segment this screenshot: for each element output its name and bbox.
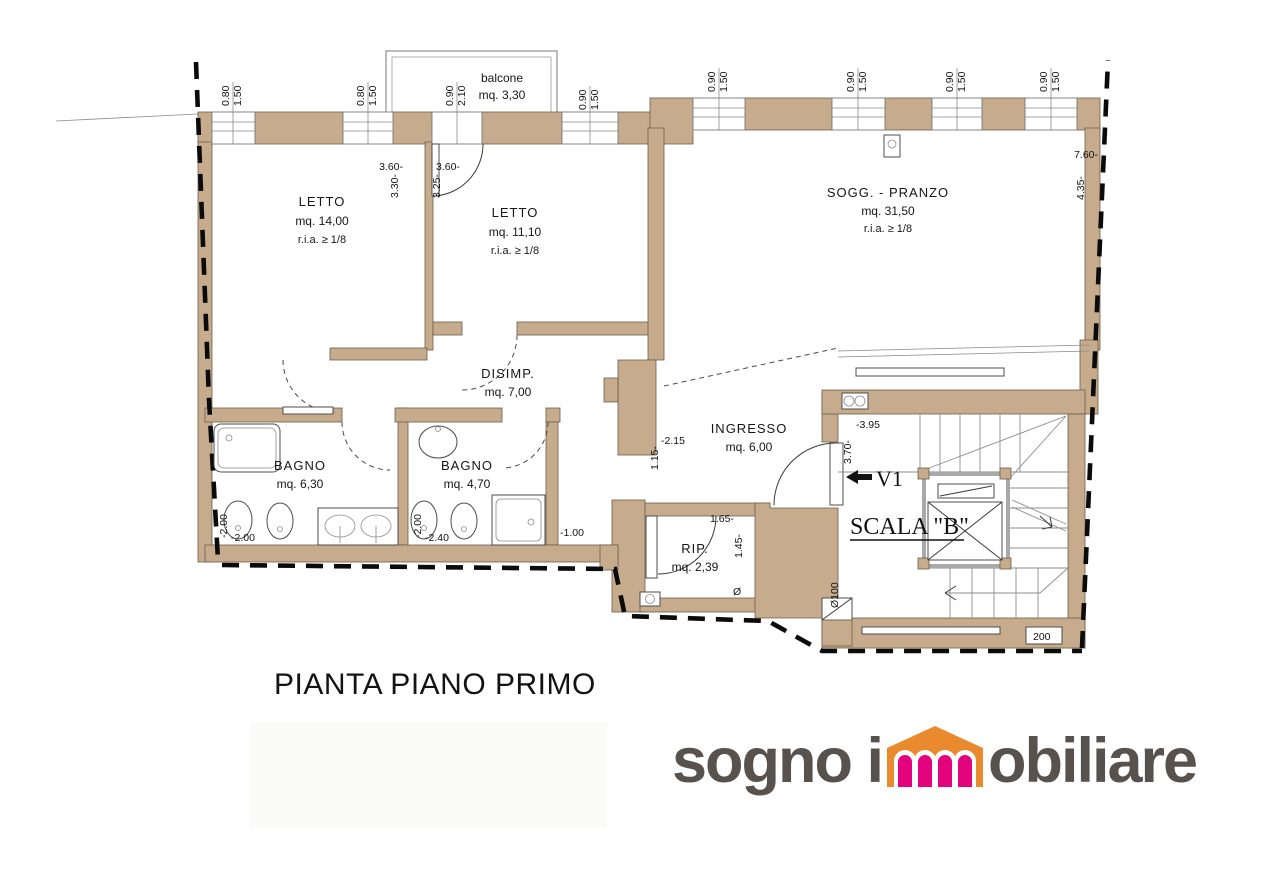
bathtub	[214, 424, 280, 472]
entrance-door	[774, 443, 843, 505]
dim-text: 7.60-	[1074, 149, 1098, 161]
room-area-disimpegno: mq. 7,00	[485, 385, 532, 399]
room-ria-soggiorno: r.i.a. ≥ 1/8	[864, 223, 912, 235]
letto2-door-swing	[462, 335, 517, 390]
window	[212, 112, 255, 144]
dim-text: 1.65-	[710, 513, 734, 525]
room-area-letto1: mq. 14,00	[295, 214, 349, 228]
room-label-ingresso: INGRESSO	[711, 421, 788, 436]
room-ria-letto1: r.i.a. ≥ 1/8	[298, 234, 346, 246]
dim-text: 0.90	[944, 71, 956, 92]
elevator-counterweight	[938, 484, 994, 498]
room-label-scala: SCALA "B"	[850, 514, 969, 540]
room-area-ingresso: mq. 6,00	[726, 440, 773, 454]
agency-logo: sogno i obiliare	[672, 724, 1196, 798]
dim-text: 0.80	[355, 85, 367, 106]
soggiorno-lower-edge	[838, 345, 1090, 376]
dimension-chain-line	[56, 114, 198, 121]
footer-placeholder-box	[250, 722, 607, 828]
room-label-bagno1: BAGNO	[274, 458, 326, 473]
logo-text-right: obiliare	[988, 724, 1196, 798]
dim-text: 0.80	[220, 85, 232, 106]
dim-text: 3.60-	[436, 161, 460, 173]
dim-text: 2.10	[456, 85, 468, 106]
label-200: 200	[1033, 631, 1051, 643]
drain-symbol: Ø	[733, 586, 741, 598]
dim-text: 3.25-	[431, 174, 443, 198]
dim-text: 1.50	[857, 71, 869, 92]
room-label-letto2: LETTO	[492, 205, 539, 220]
room-label-soggiorno: SOGG. - PRANZO	[827, 185, 949, 200]
floorplan-page: 0.80 1.50 0.80 1.50 0.90 2.10 0.90 1.50 …	[0, 0, 1272, 877]
room-area-soggiorno: mq. 31,50	[861, 204, 915, 218]
window	[832, 98, 885, 130]
double-sink-vanity	[318, 508, 398, 545]
page-title: PIANTA PIANO PRIMO	[274, 668, 596, 702]
room-label-disimpegno: DISIMP.	[481, 366, 535, 381]
dim-text: -3.95	[856, 419, 880, 431]
bagno2-door-swing	[502, 422, 548, 468]
dim-text: 3.60-	[379, 161, 403, 173]
room-area-balcone: mq. 3,30	[479, 88, 526, 102]
dim-text: 0.90	[706, 71, 718, 92]
radiator-box	[842, 393, 868, 409]
logo-house-icon	[885, 724, 985, 798]
dim-text: 1.50	[956, 71, 968, 92]
room-label-rip: RIP.	[681, 541, 709, 556]
radiator-box	[884, 135, 900, 157]
sink	[419, 426, 457, 458]
dim-text: -2.00	[412, 514, 424, 538]
stairs-down-arrow-right	[1012, 500, 1066, 531]
dim-text: -2.15	[661, 435, 685, 447]
letto1-door-swing	[283, 360, 335, 412]
radiator-box	[640, 592, 660, 606]
shower	[492, 495, 545, 545]
dim-text: -2.00	[231, 532, 255, 544]
dim-text: 1.50	[367, 85, 379, 106]
dim-text: -1.00	[560, 527, 584, 539]
dim-text: -2.40	[425, 532, 449, 544]
bidet	[267, 503, 293, 539]
dim-text: 0.90	[1038, 71, 1050, 92]
dim-text: 1.50	[1050, 71, 1062, 92]
dim-text: 1.50	[718, 71, 730, 92]
room-area-bagno1: mq. 6,30	[277, 477, 324, 491]
dim-text: 1.45-	[733, 534, 745, 558]
dim-text: 0.90	[577, 89, 589, 110]
dim-text: 1.50	[232, 85, 244, 106]
room-area-bagno2: mq. 4,70	[444, 477, 491, 491]
dim-text: 1.50	[589, 89, 601, 110]
dim-text: -2.00	[218, 514, 230, 538]
soggiorno-ingresso-open-line	[664, 348, 838, 386]
room-ria-letto2: r.i.a. ≥ 1/8	[491, 245, 539, 257]
dim-text: 1.15-	[649, 446, 661, 470]
bagno1-door-swing	[342, 422, 390, 470]
bidet	[451, 503, 477, 539]
room-area-rip: mq. 2,39	[672, 560, 719, 574]
label-v1: V1	[876, 466, 903, 491]
stairs-direction-arrow	[945, 568, 1068, 600]
bagno1-pocket-door	[283, 407, 333, 414]
room-label-letto1: LETTO	[299, 194, 346, 209]
room-label-balcone: balcone	[481, 71, 523, 85]
logo-text-left: sogno i	[672, 724, 882, 798]
dim-text: 3.30-	[389, 174, 401, 198]
room-area-letto2: mq. 11,10	[489, 225, 542, 239]
pipe-label: Ø100	[829, 582, 841, 608]
dim-text: 0.90	[845, 71, 857, 92]
room-label-bagno2: BAGNO	[441, 458, 493, 473]
wall-slot	[862, 627, 1000, 634]
dim-text: 3.70-	[842, 440, 854, 464]
dim-text: 0.90	[444, 85, 456, 106]
dim-text: 4.35-	[1075, 176, 1087, 200]
